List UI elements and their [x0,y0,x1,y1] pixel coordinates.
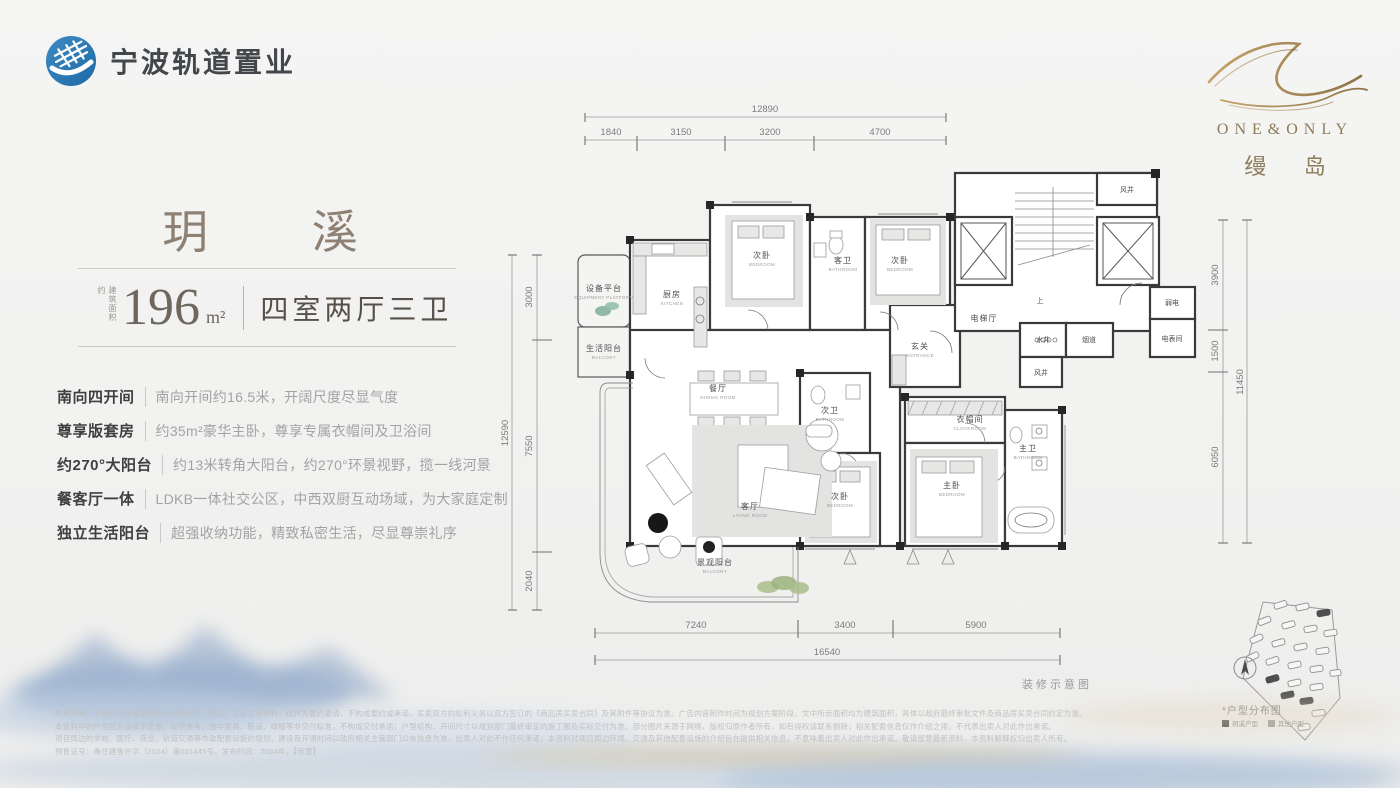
room-label: 厨房 [663,289,681,299]
disclaimer-line: 本资料中的户型图为装修示意图，仅供参考，图中家具、陈设、绿植等非交付标准，不构成… [55,721,1115,734]
disclaimer-line: 预售证号：甬住建售许字（2024）第001445号。发布时间：2024年。【示意… [55,746,1115,759]
room-label: 电表间 [1162,334,1183,343]
room-label: 主卧 [943,480,961,490]
legend-item: 玥溪户型 [1222,718,1258,728]
room-label-en: BEDROOM [749,262,775,267]
feature-desc: 超强收纳功能，精致私密生活，尽显尊崇礼序 [160,523,457,543]
floor-plan: 12890 1840 3150 3200 4700 12590 3000 755… [500,95,1270,710]
divider-rule [243,286,244,330]
room-label: 次卧 [831,491,849,501]
dim-left-seg: 7550 [524,435,535,456]
room-label-en: BATHROOM [1014,455,1043,460]
dim-right-seg: 1500 [1210,340,1221,361]
room-label: 风井 [1120,185,1134,194]
feature-label: 餐客厅一体 [57,488,135,509]
legend-swatch [1222,720,1229,727]
feature-desc: LDKB一体社交公区，中西双厨互动场域，为大家庭定制 [145,489,508,509]
stair-up-label: 上 [1037,296,1044,305]
disclaimer-line: 免责声明：本资料为宁波轨道置业有限公司「缦岛」项目宣传资料，仅作为要约邀请，不构… [55,708,1115,721]
feature-label: 约270°大阳台 [57,454,152,475]
dim-bottom-seg: 3400 [834,620,855,631]
legend-label: 玥溪户型 [1232,718,1258,728]
room-label: 次卧 [891,255,909,265]
room-label: 次卫 [821,405,839,415]
room-label-en: EQUIPMENT PLATFORM [574,295,633,300]
room-label: 弱电 [1165,298,1179,307]
feature-item: 独立生活阳台 超强收纳功能，精致私密生活，尽显尊崇礼序 [57,522,487,543]
room-label-en: BALCONY [703,569,727,574]
room-label-en: BATHROOM [816,417,845,422]
dim-top-seg: 1840 [600,127,621,138]
room-label: 餐厅 [709,384,727,393]
rail-transit-logo-icon [44,34,98,88]
plan-caption: 装修示意图 [1022,677,1092,691]
room-label-en: ENTRANCE [906,353,934,358]
disclaimer-line: 项目周边的学校、医疗、商业、轨道交通等市政配套设施的规划、建设及开通时间以政府相… [55,733,1115,746]
room-label-en: BEDROOM [827,503,853,508]
dim-left-seg: 2040 [524,570,535,591]
room-label-en: CLOAKROOM [954,426,987,431]
room-label-en: BALCONY [592,355,616,360]
site-plan-legend: 玥溪户型 其他户型 [1222,718,1304,728]
north-arrow-icon [1234,657,1256,679]
room-label: 景观阳台 [697,557,733,567]
feature-label: 尊享版套房 [57,420,135,441]
area-value: 196 [122,282,200,334]
room-label: 烟道 [1082,335,1096,344]
dim-top-seg: 3200 [759,127,780,138]
disclaimer: 免责声明：本资料为宁波轨道置业有限公司「缦岛」项目宣传资料，仅作为要约邀请，不构… [55,708,1115,758]
dim-top-total: 12890 [752,104,778,115]
unit-name-title: 玥 溪 [80,196,440,262]
dim-right-seg: 6050 [1210,446,1221,467]
room-label: 衣帽间 [957,414,984,424]
legend-swatch [1268,720,1275,727]
feature-list: 南向四开间 南向开间约16.5米，开阔尺度尽显气度 尊享版套房 约35m²豪华主… [57,386,487,556]
area-row: 建筑面积约 196 m² 四室两厅三卫 [96,282,452,334]
room-label: 设备平台 [586,283,622,293]
room-label-en: DINING ROOM [700,395,735,400]
dim-left-seg: 3000 [524,286,535,307]
dim-right-total: 11450 [1235,369,1246,395]
dim-bottom-seg: 7240 [685,620,706,631]
room-label-en: BEDROOM [887,267,913,272]
feature-item: 南向四开间 南向开间约16.5米，开阔尺度尽显气度 [57,386,487,407]
room-label: 电梯厅 [971,313,998,323]
room-label: 风井 [1034,368,1048,377]
feature-label: 独立生活阳台 [57,522,150,543]
room-label: 主卫 [1019,443,1037,453]
room-label: 生活阳台 [586,343,622,353]
feature-desc: 约35m²豪华主卧，尊享专属衣帽间及卫浴间 [145,421,432,441]
room-label-en: LIVING ROOM [733,513,767,518]
room-label: 次卧 [753,250,771,260]
dim-bottom-total: 16540 [814,647,840,658]
legend-label: 其他户型 [1278,718,1304,728]
room-label-en: KITCHEN [661,301,684,306]
feature-desc: 南向开间约16.5米，开阔尺度尽显气度 [145,387,399,407]
site-plan [1160,578,1390,758]
room-label-en: BEDROOM [939,492,965,497]
feature-item: 餐客厅一体 LDKB一体社交公区，中西双厨互动场域，为大家庭定制 [57,488,487,509]
area-unit: m² [206,307,225,328]
brand-logo: 宁波轨道置业 [44,34,296,88]
feature-item: 尊享版套房 约35m²豪华主卧，尊享专属衣帽间及卫浴间 [57,420,487,441]
dim-bottom-seg: 5900 [965,620,986,631]
dim-top-seg: 3150 [670,127,691,138]
divider-rule [78,346,456,347]
brand-name: 宁波轨道置业 [110,41,296,81]
dim-top-seg: 4700 [869,127,890,138]
legend-item: 其他户型 [1268,718,1304,728]
room-label: 客厅 [741,501,759,511]
feature-item: 约270°大阳台 约13米转角大阳台，约270°环景视野，揽一线河景 [57,454,487,475]
area-prefix-label: 建筑面积约 [96,286,118,330]
feature-desc: 约13米转角大阳台，约270°环景视野，揽一线河景 [162,455,491,475]
site-plan-title: *户型分布图 [1222,702,1282,717]
room-label: 客卫 [834,255,852,265]
divider-rule [78,268,456,269]
room-label-en: BATHROOM [829,267,858,272]
layout-text: 四室两厅三卫 [260,288,452,328]
room-label: 玄关 [911,341,929,351]
feature-label: 南向四开间 [57,386,135,407]
dim-left-total: 12590 [500,420,511,446]
dim-right-seg: 3900 [1210,264,1221,285]
room-label: 水井 [1036,335,1050,344]
